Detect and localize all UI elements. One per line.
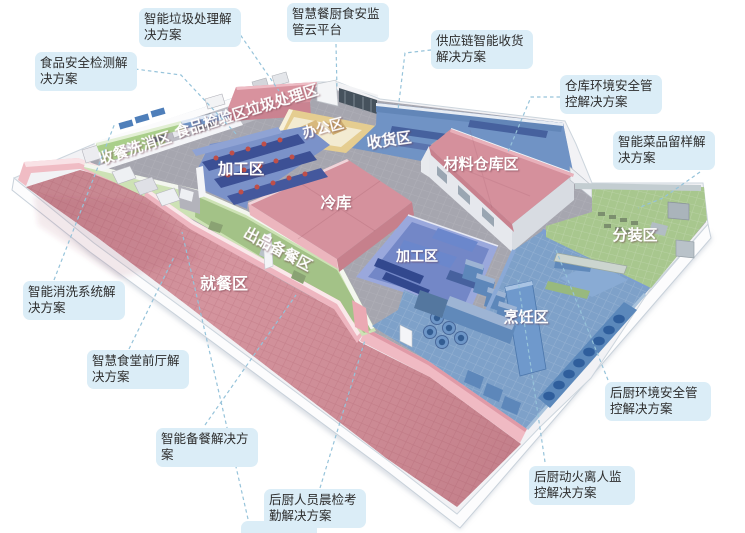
svg-text:就餐区: 就餐区	[200, 274, 248, 293]
svg-text:材料仓库区: 材料仓库区	[443, 155, 518, 173]
svg-text:加工区: 加工区	[217, 160, 265, 178]
svg-text:冷库: 冷库	[320, 193, 352, 212]
svg-text:加工区: 加工区	[395, 248, 438, 264]
svg-text:分装区: 分装区	[612, 226, 657, 244]
svg-text:烹饪区: 烹饪区	[503, 308, 548, 326]
